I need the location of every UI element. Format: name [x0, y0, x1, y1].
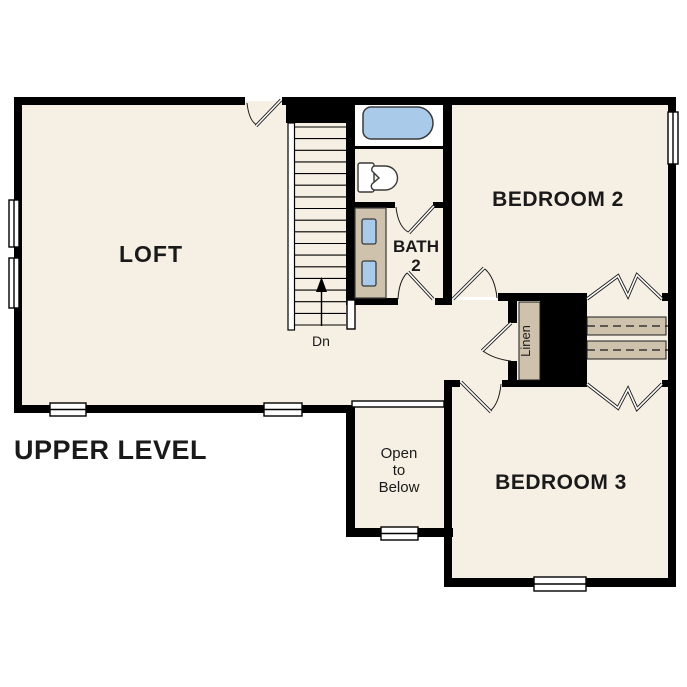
bath-label-line2: 2 [411, 256, 420, 275]
wall-bedroom2-left [443, 97, 452, 305]
wall-bedroom2-bottom-end [662, 293, 676, 301]
railing-open-to-below [352, 401, 444, 407]
wall-stair-head [286, 97, 354, 123]
exterior-wall-left [14, 97, 22, 413]
open-to-below-line3: Below [379, 479, 420, 496]
toilet-icon [358, 163, 398, 192]
bathtub-icon [363, 107, 433, 139]
window-icon [668, 112, 678, 164]
wall-linen-stub-bottom [508, 361, 517, 382]
vanity [355, 208, 386, 298]
window-icon [50, 403, 86, 416]
window-icon [264, 403, 302, 416]
exterior-wall-top-left [14, 97, 245, 105]
stair-rail [288, 123, 295, 330]
floor-plan-page: LOFT BEDROOM 2 BEDROOM 3 BATH 2 Linen Op… [0, 0, 687, 687]
wall-bedroom3-top-mid [502, 380, 587, 387]
wall-open-below-left [346, 405, 355, 537]
bedroom3-label: BEDROOM 3 [495, 471, 627, 494]
open-to-below-line1: Open [381, 445, 418, 462]
exterior-wall-right [668, 97, 676, 587]
wall-tub-toilet [355, 146, 444, 149]
wall-bedroom3-left [444, 380, 452, 587]
stair-direction-label: Dn [312, 333, 330, 349]
window-icon [381, 527, 418, 540]
railing-stair-post [347, 300, 355, 329]
linen-label: Linen [518, 325, 533, 357]
bedroom2-label: BEDROOM 2 [492, 188, 624, 211]
window-icon [534, 577, 586, 591]
open-to-below-line2: to [393, 462, 406, 479]
wall-stair-right [346, 97, 355, 300]
wall-bedroom3-top-left [444, 380, 460, 387]
window-icon [9, 200, 19, 247]
wall-linen-stub-top [508, 299, 517, 323]
wall-closet-core [540, 297, 587, 384]
window-icon [9, 258, 19, 308]
loft-label: LOFT [119, 241, 183, 267]
floor-plan: LOFT BEDROOM 2 BEDROOM 3 BATH 2 Linen Op… [0, 0, 687, 687]
wall-bedroom3-top-end [662, 380, 676, 387]
bath-label-line1: BATH [393, 237, 439, 256]
page-title: UPPER LEVEL [14, 435, 207, 465]
wall-bath-inner-left [352, 202, 395, 208]
sink-icon [362, 261, 376, 286]
sink-icon [362, 219, 376, 244]
